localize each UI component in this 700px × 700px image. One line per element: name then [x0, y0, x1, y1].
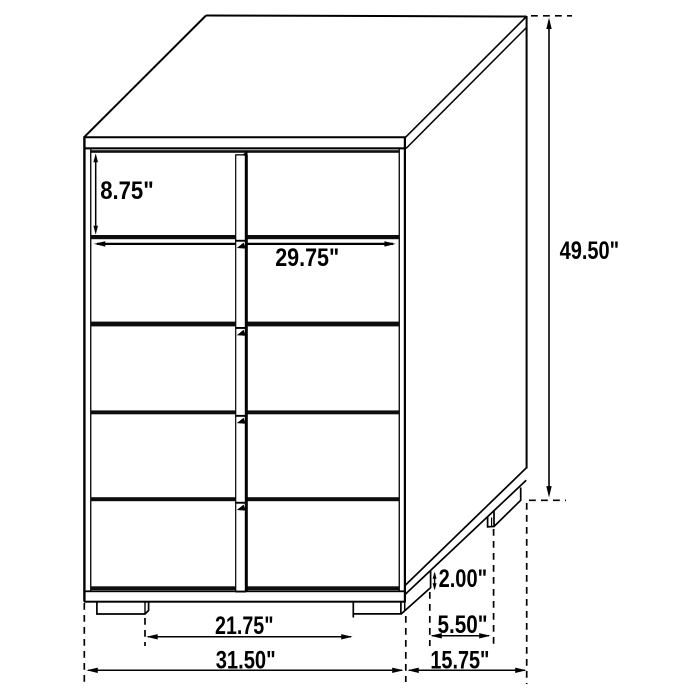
svg-text:15.75": 15.75" [430, 646, 489, 674]
svg-text:49.50": 49.50" [560, 237, 620, 265]
svg-text:5.50": 5.50" [438, 611, 488, 639]
svg-text:31.50": 31.50" [216, 646, 276, 674]
svg-text:21.75": 21.75" [215, 612, 274, 640]
svg-text:2.00": 2.00" [439, 565, 488, 593]
svg-text:8.75": 8.75" [100, 177, 154, 205]
svg-text:29.75": 29.75" [275, 244, 339, 272]
